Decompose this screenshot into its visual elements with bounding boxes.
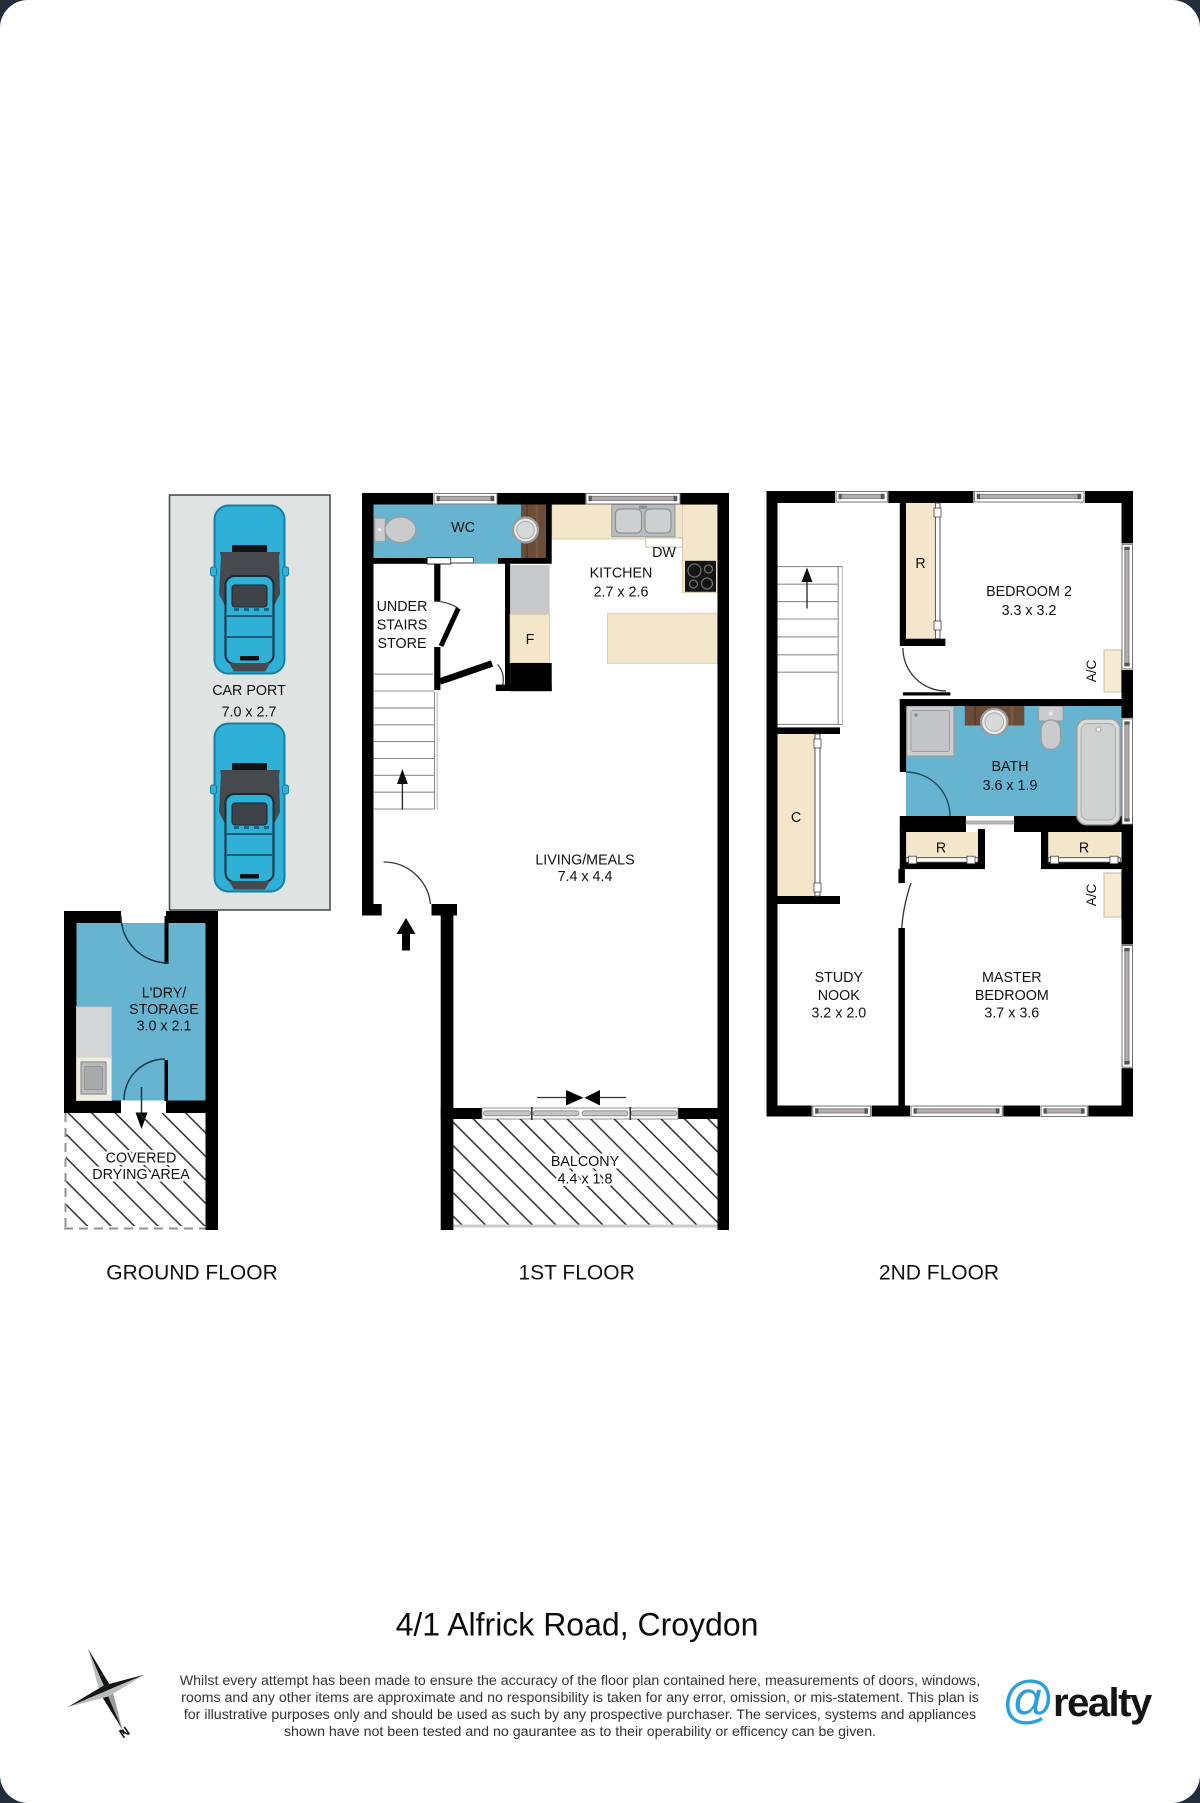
svg-text:COVERED: COVERED xyxy=(106,1151,177,1167)
svg-text:DW: DW xyxy=(652,545,676,561)
svg-text:STORAGE: STORAGE xyxy=(129,1002,199,1018)
svg-text:7.0 x 2.7: 7.0 x 2.7 xyxy=(222,705,277,721)
svg-text:3.6 x 1.9: 3.6 x 1.9 xyxy=(983,778,1038,794)
svg-text:WC: WC xyxy=(451,520,475,536)
svg-text:A/C: A/C xyxy=(1084,884,1099,907)
svg-text:DRYING AREA: DRYING AREA xyxy=(92,1167,190,1183)
svg-text:CAR PORT: CAR PORT xyxy=(212,683,286,699)
svg-text:4/1 Alfrick Road, Croydon: 4/1 Alfrick Road, Croydon xyxy=(396,1607,759,1643)
svg-text:7.4 x 4.4: 7.4 x 4.4 xyxy=(558,869,613,885)
svg-text:STUDY: STUDY xyxy=(815,970,864,986)
svg-text:@: @ xyxy=(1001,1671,1054,1729)
svg-text:LIVING/MEALS: LIVING/MEALS xyxy=(535,853,634,869)
svg-text:GROUND FLOOR: GROUND FLOOR xyxy=(106,1262,278,1285)
svg-text:STORE: STORE xyxy=(378,636,427,652)
svg-text:C: C xyxy=(791,810,801,826)
svg-text:MASTER: MASTER xyxy=(982,970,1042,986)
svg-text:for illustrative purposes only: for illustrative purposes only and shoul… xyxy=(184,1707,976,1723)
svg-text:2.7 x 2.6: 2.7 x 2.6 xyxy=(594,585,649,601)
svg-text:rooms and any other items are: rooms and any other items are approximat… xyxy=(181,1690,979,1706)
svg-text:3.7 x 3.6: 3.7 x 3.6 xyxy=(984,1006,1039,1022)
svg-text:F: F xyxy=(526,632,535,648)
svg-text:realty: realty xyxy=(1053,1681,1153,1725)
svg-text:Whilst every attempt has been: Whilst every attempt has been made to en… xyxy=(180,1673,980,1689)
svg-text:BALCONY: BALCONY xyxy=(551,1154,620,1170)
svg-text:UNDER: UNDER xyxy=(377,599,428,615)
svg-text:KITCHEN: KITCHEN xyxy=(590,566,653,582)
svg-text:R: R xyxy=(936,841,946,857)
svg-text:2ND FLOOR: 2ND FLOOR xyxy=(879,1262,999,1285)
svg-text:R: R xyxy=(1079,841,1089,857)
svg-text:NOOK: NOOK xyxy=(818,988,861,1004)
svg-text:R: R xyxy=(915,556,925,572)
svg-text:L'DRY/: L'DRY/ xyxy=(142,986,187,1002)
svg-text:3.2 x 2.0: 3.2 x 2.0 xyxy=(811,1006,866,1022)
svg-text:BEDROOM 2: BEDROOM 2 xyxy=(986,584,1072,600)
svg-text:3.3 x 3.2: 3.3 x 3.2 xyxy=(1002,603,1057,619)
svg-text:STAIRS: STAIRS xyxy=(377,618,428,634)
svg-text:3.0 x 2.1: 3.0 x 2.1 xyxy=(137,1019,192,1035)
svg-text:4.4 x 1.8: 4.4 x 1.8 xyxy=(558,1172,613,1188)
svg-text:A/C: A/C xyxy=(1084,660,1099,683)
svg-text:1ST FLOOR: 1ST FLOOR xyxy=(518,1262,634,1285)
svg-text:BEDROOM: BEDROOM xyxy=(975,988,1049,1004)
svg-text:BATH: BATH xyxy=(991,759,1028,775)
svg-text:shown have not been tested and: shown have not been tested and no gauran… xyxy=(284,1724,876,1740)
